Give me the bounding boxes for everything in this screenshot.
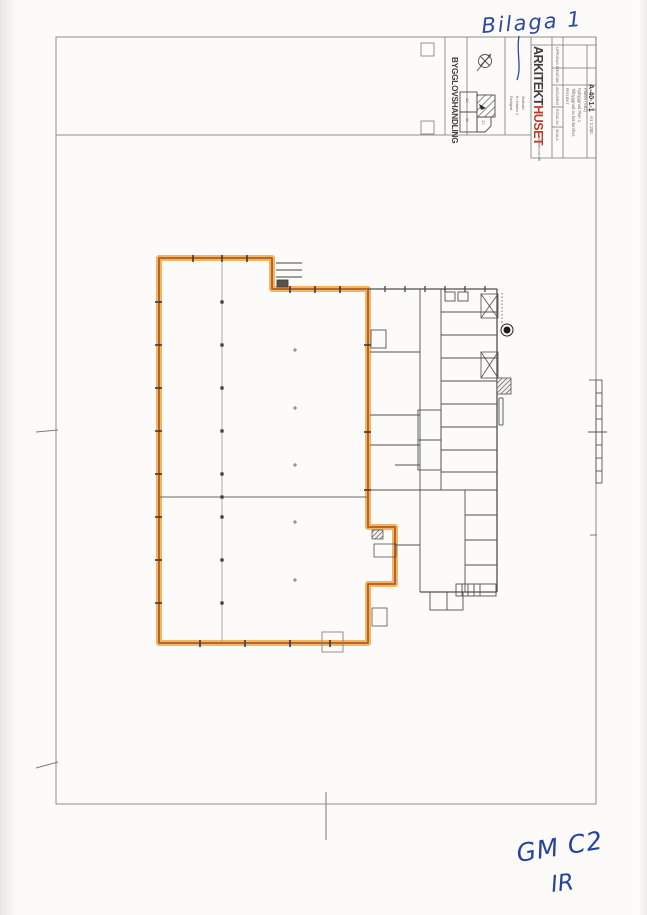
stamp-bygglovshandling: BYGGLOVSHANDLING xyxy=(450,57,459,143)
arkitekthuset-logo: ARKITEKTHUSET xyxy=(531,46,545,146)
svg-text:SKALA: SKALA xyxy=(555,129,559,141)
scale-value: A1 1:200 xyxy=(589,116,594,134)
svg-text:RITAD AV: RITAD AV xyxy=(555,109,559,125)
shaft-hatch xyxy=(497,378,511,394)
svg-text:Arkitekthuset AB: Arkitekthuset AB xyxy=(537,136,541,162)
drawing-sheet-svg: BYGGLOVSHANDLING ARKITEKTHUSET A-40-1-1 … xyxy=(0,0,647,915)
svg-text:Kv Hästen 2: Kv Hästen 2 xyxy=(515,96,519,115)
scan-edge-shadow-left xyxy=(0,0,16,915)
scan-edge-shadow-right xyxy=(639,0,647,915)
scanned-drawing-page: BYGGLOVSHANDLING ARKITEKTHUSET A-40-1-1 … xyxy=(0,0,647,915)
paper xyxy=(0,0,647,915)
svg-text:Fastighet: Fastighet xyxy=(509,96,513,110)
svg-text:Planer (VB1): Planer (VB1) xyxy=(583,88,588,113)
site-label-13: 13 xyxy=(481,120,486,125)
svg-text:DATUM: DATUM xyxy=(555,70,559,83)
svg-text:Nybyggnad Plan 1: Nybyggnad Plan 1 xyxy=(577,88,582,123)
svg-text:Stadsdel: Stadsdel xyxy=(521,96,525,110)
svg-text:UPPDRAG NR: UPPDRAG NR xyxy=(555,47,559,71)
svg-text:PROJEKT: PROJEKT xyxy=(565,88,569,105)
site-label-12: 12 xyxy=(465,98,470,103)
logo-part-black: ARKITEKT xyxy=(531,46,545,106)
svg-text:Tillbyggnad av kontorshus: Tillbyggnad av kontorshus xyxy=(571,88,576,137)
svg-text:ANSVARIG: ANSVARIG xyxy=(555,87,559,106)
signature-line2: IR xyxy=(550,869,576,898)
